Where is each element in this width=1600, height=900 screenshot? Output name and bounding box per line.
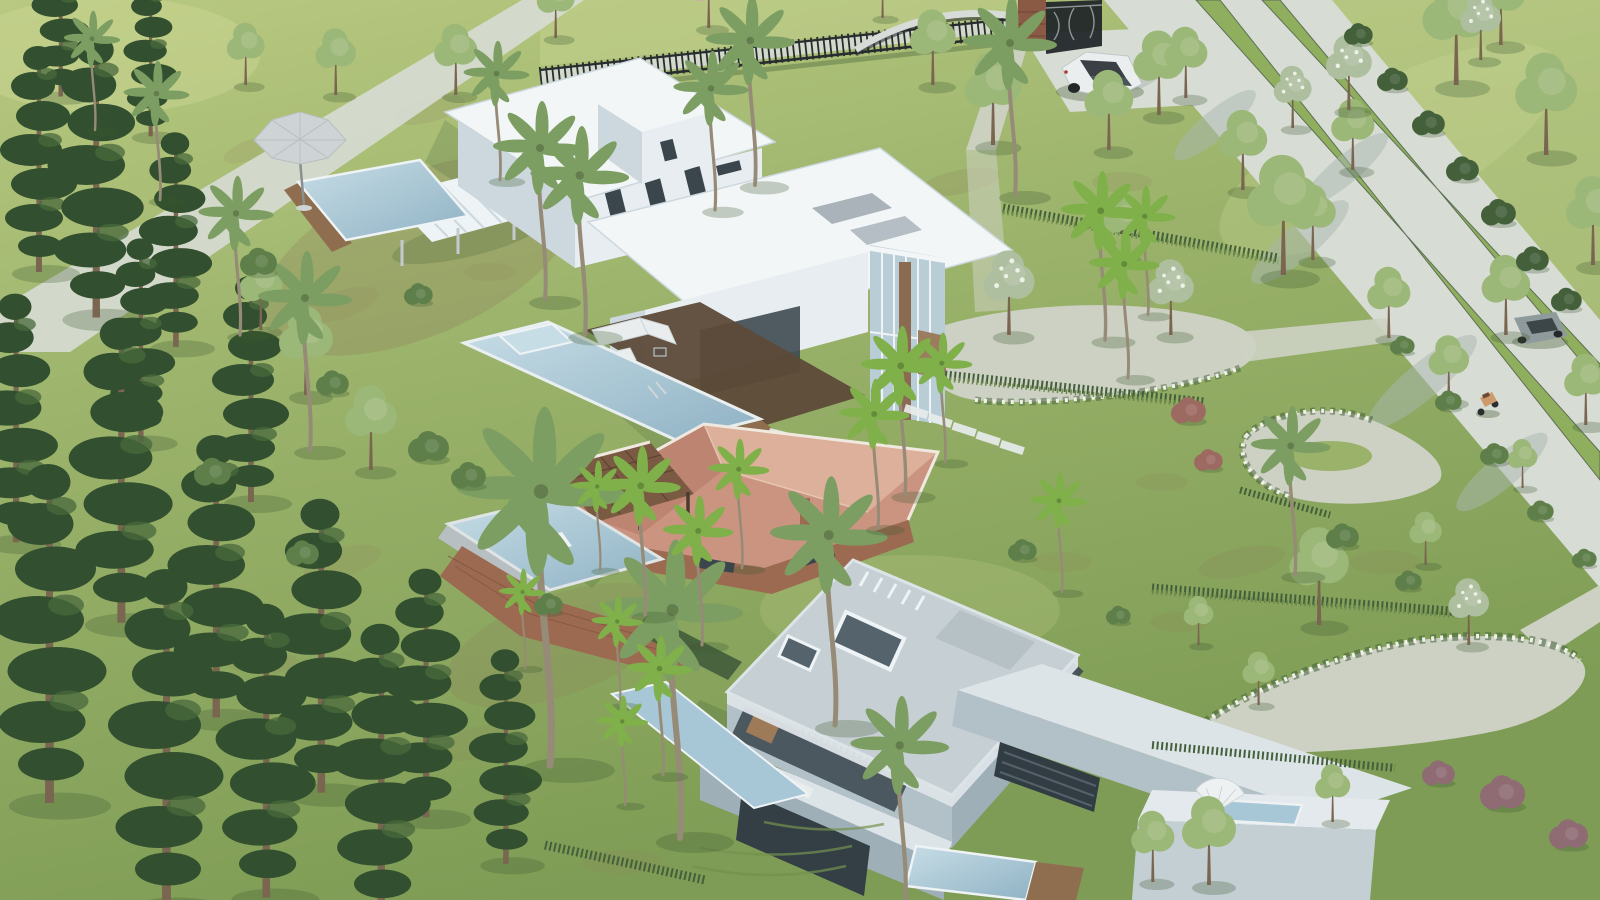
scooter-wheel — [1478, 409, 1485, 416]
car-wheel — [1554, 331, 1563, 338]
estate-render: Aerial 3D architectural render of a gate… — [0, 0, 1600, 900]
suv-taillight — [1064, 70, 1068, 74]
suv-wheel — [1068, 83, 1080, 93]
umbrella-base — [296, 205, 312, 211]
lap-pool-deck — [1026, 862, 1084, 900]
render-viewport: Aerial 3D architectural render of a gate… — [0, 0, 1600, 900]
